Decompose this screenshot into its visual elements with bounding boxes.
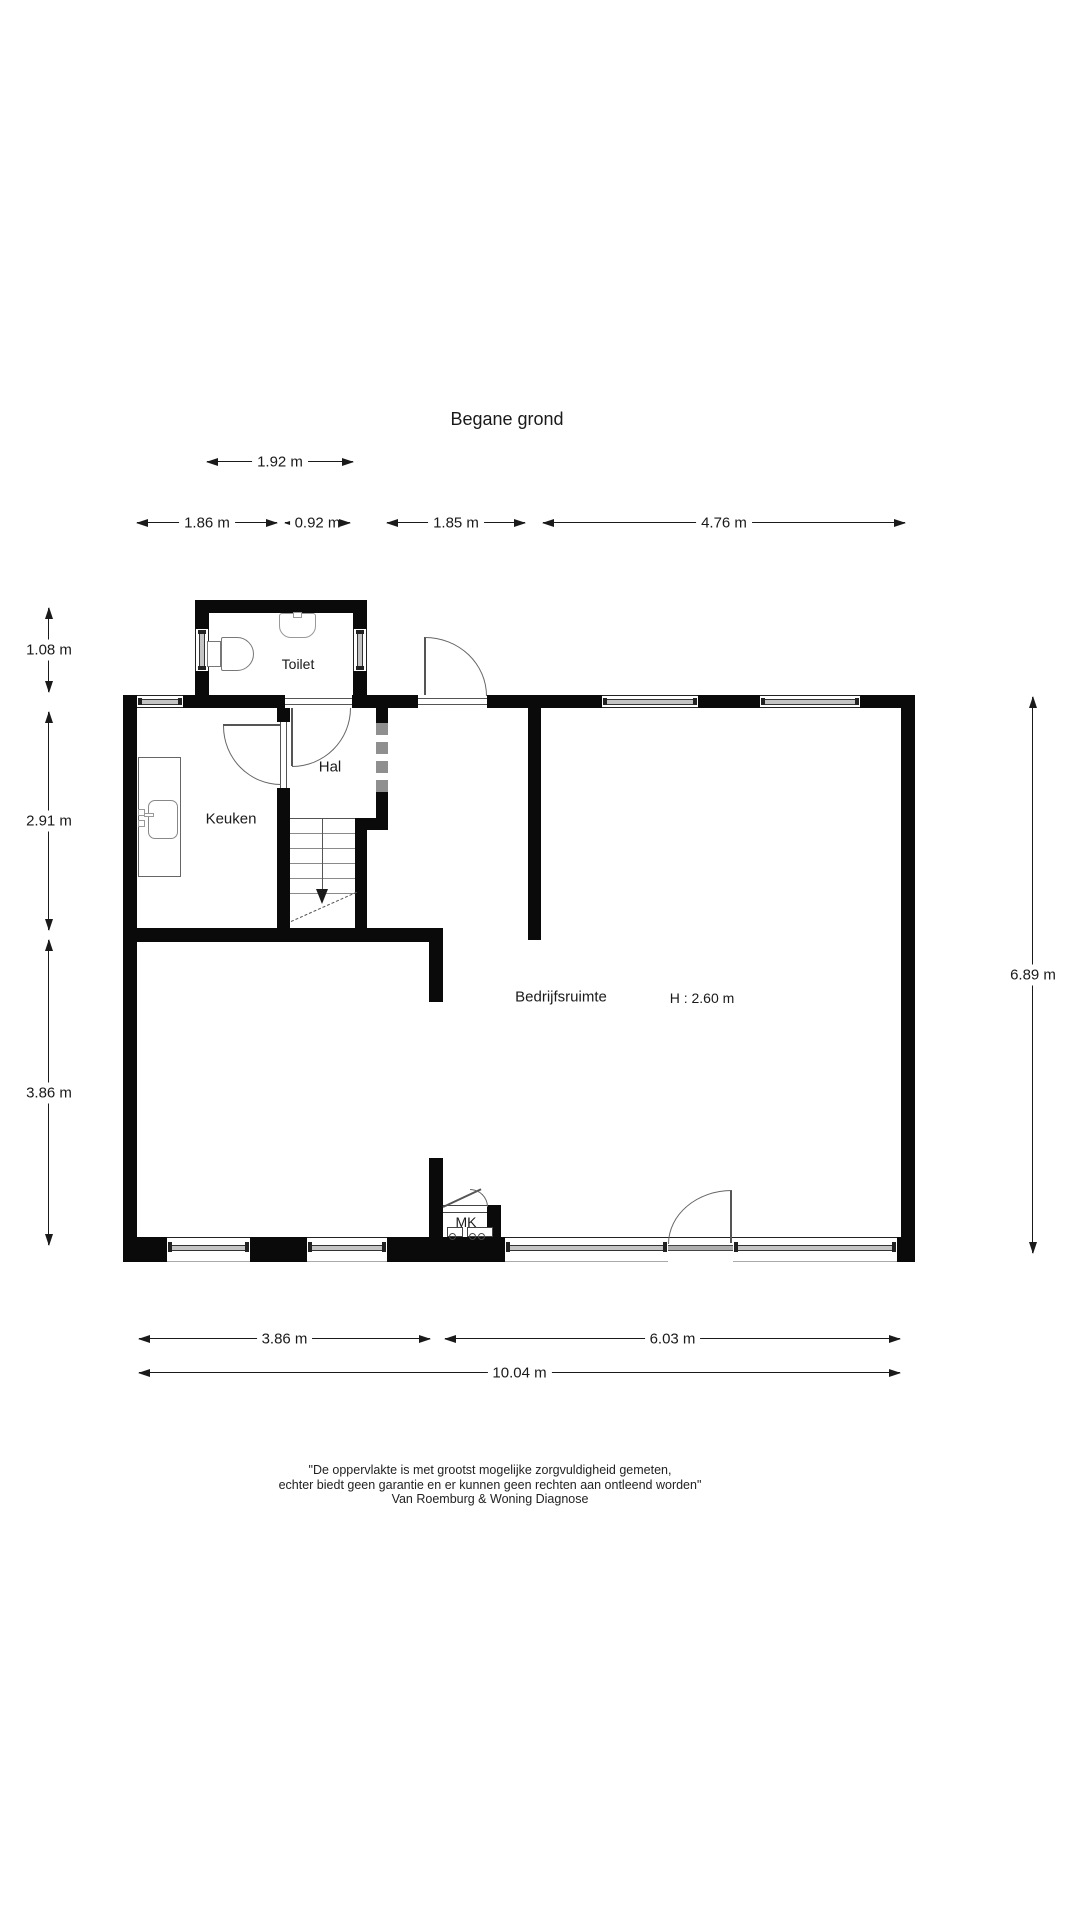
window — [307, 1237, 387, 1262]
wall-jog — [355, 818, 388, 830]
wall-stairs-right — [355, 830, 367, 942]
kitchen-tap-spout — [144, 813, 154, 817]
dimension-total-width: 10.04 m — [139, 1372, 900, 1373]
toilet-sink-tap — [293, 612, 302, 618]
room-label-hal: Hal — [319, 759, 342, 776]
wall-segment — [353, 671, 367, 695]
wall-segment — [698, 695, 760, 708]
dimension-keuken-width: 1.86 m — [137, 522, 277, 523]
room-height-note: H : 2.60 m — [670, 990, 735, 1006]
window — [760, 695, 860, 708]
dimension-front-right-width: 4.76 m — [543, 522, 905, 523]
window — [602, 695, 698, 708]
back-door-arc — [668, 1190, 732, 1244]
disclaimer-line2: echter biedt geen garantie en er kunnen … — [140, 1478, 840, 1493]
toilet-door-opening — [285, 695, 352, 708]
page-title: Begane grond — [257, 409, 757, 430]
wall-mk-left — [429, 1158, 443, 1237]
mk-door-arc — [470, 1189, 488, 1207]
dimension-lower-depth: 3.86 m — [48, 940, 49, 1245]
wall-segment — [195, 613, 209, 629]
stair-direction-line — [322, 818, 323, 890]
floorplan-page: Begane grond — [0, 0, 1080, 1920]
kitchen-sink — [148, 800, 178, 839]
room-label-toilet: Toilet — [282, 656, 315, 672]
wall-hal-stub — [376, 708, 388, 723]
kitchen-tap — [138, 820, 145, 827]
disclaimer: "De oppervlakte is met grootst mogelijke… — [140, 1463, 840, 1507]
dimension-toilet-width: 1.92 m — [207, 461, 353, 462]
stair-direction-arrow — [316, 889, 328, 904]
wall-keuken-hal — [277, 708, 290, 722]
window — [505, 1237, 668, 1262]
window — [137, 695, 183, 708]
wall-middle — [528, 708, 541, 940]
wall-segment — [123, 1237, 167, 1262]
disclaimer-line1: "De oppervlakte is met grootst mogelijke… — [140, 1463, 840, 1478]
wall-segment — [353, 613, 367, 629]
front-door-opening — [418, 695, 487, 708]
toilet-bowl — [221, 637, 254, 671]
wall-right-exterior — [901, 695, 915, 1262]
dimension-bottom-left-width: 3.86 m — [139, 1338, 430, 1339]
keuken-door-arc — [223, 726, 281, 785]
room-label-mk: MK — [456, 1214, 477, 1230]
wall-stub — [429, 942, 443, 1002]
toilet-tank — [207, 641, 221, 667]
wall-segment — [387, 1237, 505, 1262]
front-door-arc — [425, 637, 487, 696]
dimension-keuken-depth: 2.91 m — [48, 712, 49, 930]
wall-segment — [352, 695, 418, 708]
wall-keuken-bottom — [123, 928, 443, 942]
room-label-bedrijfsruimte: Bedrijfsruimte — [515, 989, 607, 1006]
window — [353, 629, 367, 671]
open-wall-dashed — [376, 723, 388, 792]
window — [167, 1237, 250, 1262]
disclaimer-line3: Van Roemburg & Woning Diagnose — [140, 1492, 840, 1507]
dimension-entry-width: 1.85 m — [387, 522, 525, 523]
dimension-hal-width: 0.92 m — [285, 522, 350, 523]
wall-keuken-hal — [277, 788, 290, 942]
wall-segment — [250, 1237, 307, 1262]
wall-segment — [195, 600, 367, 613]
wall-segment — [183, 695, 285, 708]
room-label-keuken: Keuken — [206, 811, 257, 828]
wall-segment — [897, 1237, 915, 1262]
dimension-bottom-right-width: 6.03 m — [445, 1338, 900, 1339]
wall-left-exterior — [123, 695, 137, 1262]
wall-segment — [487, 695, 602, 708]
wall-segment — [195, 671, 209, 695]
dimension-toilet-depth: 1.08 m — [48, 608, 49, 692]
window — [733, 1237, 897, 1262]
dimension-total-depth: 6.89 m — [1032, 697, 1033, 1253]
